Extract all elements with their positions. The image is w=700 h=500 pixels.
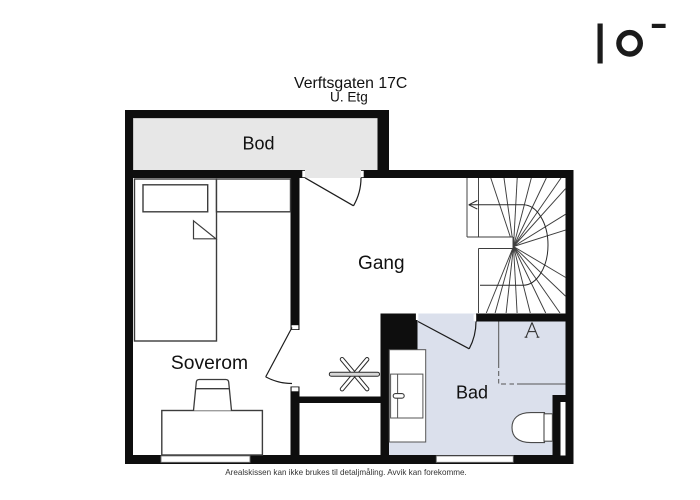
svg-text:Bod: Bod — [242, 134, 274, 154]
svg-text:Gang: Gang — [358, 253, 404, 274]
svg-text:Bad: Bad — [456, 383, 488, 403]
svg-text:Soverom: Soverom — [171, 353, 248, 374]
svg-text:Arealskissen kan ikke brukes t: Arealskissen kan ikke brukes til detaljm… — [225, 468, 466, 477]
svg-text:U. Etg: U. Etg — [330, 90, 368, 105]
